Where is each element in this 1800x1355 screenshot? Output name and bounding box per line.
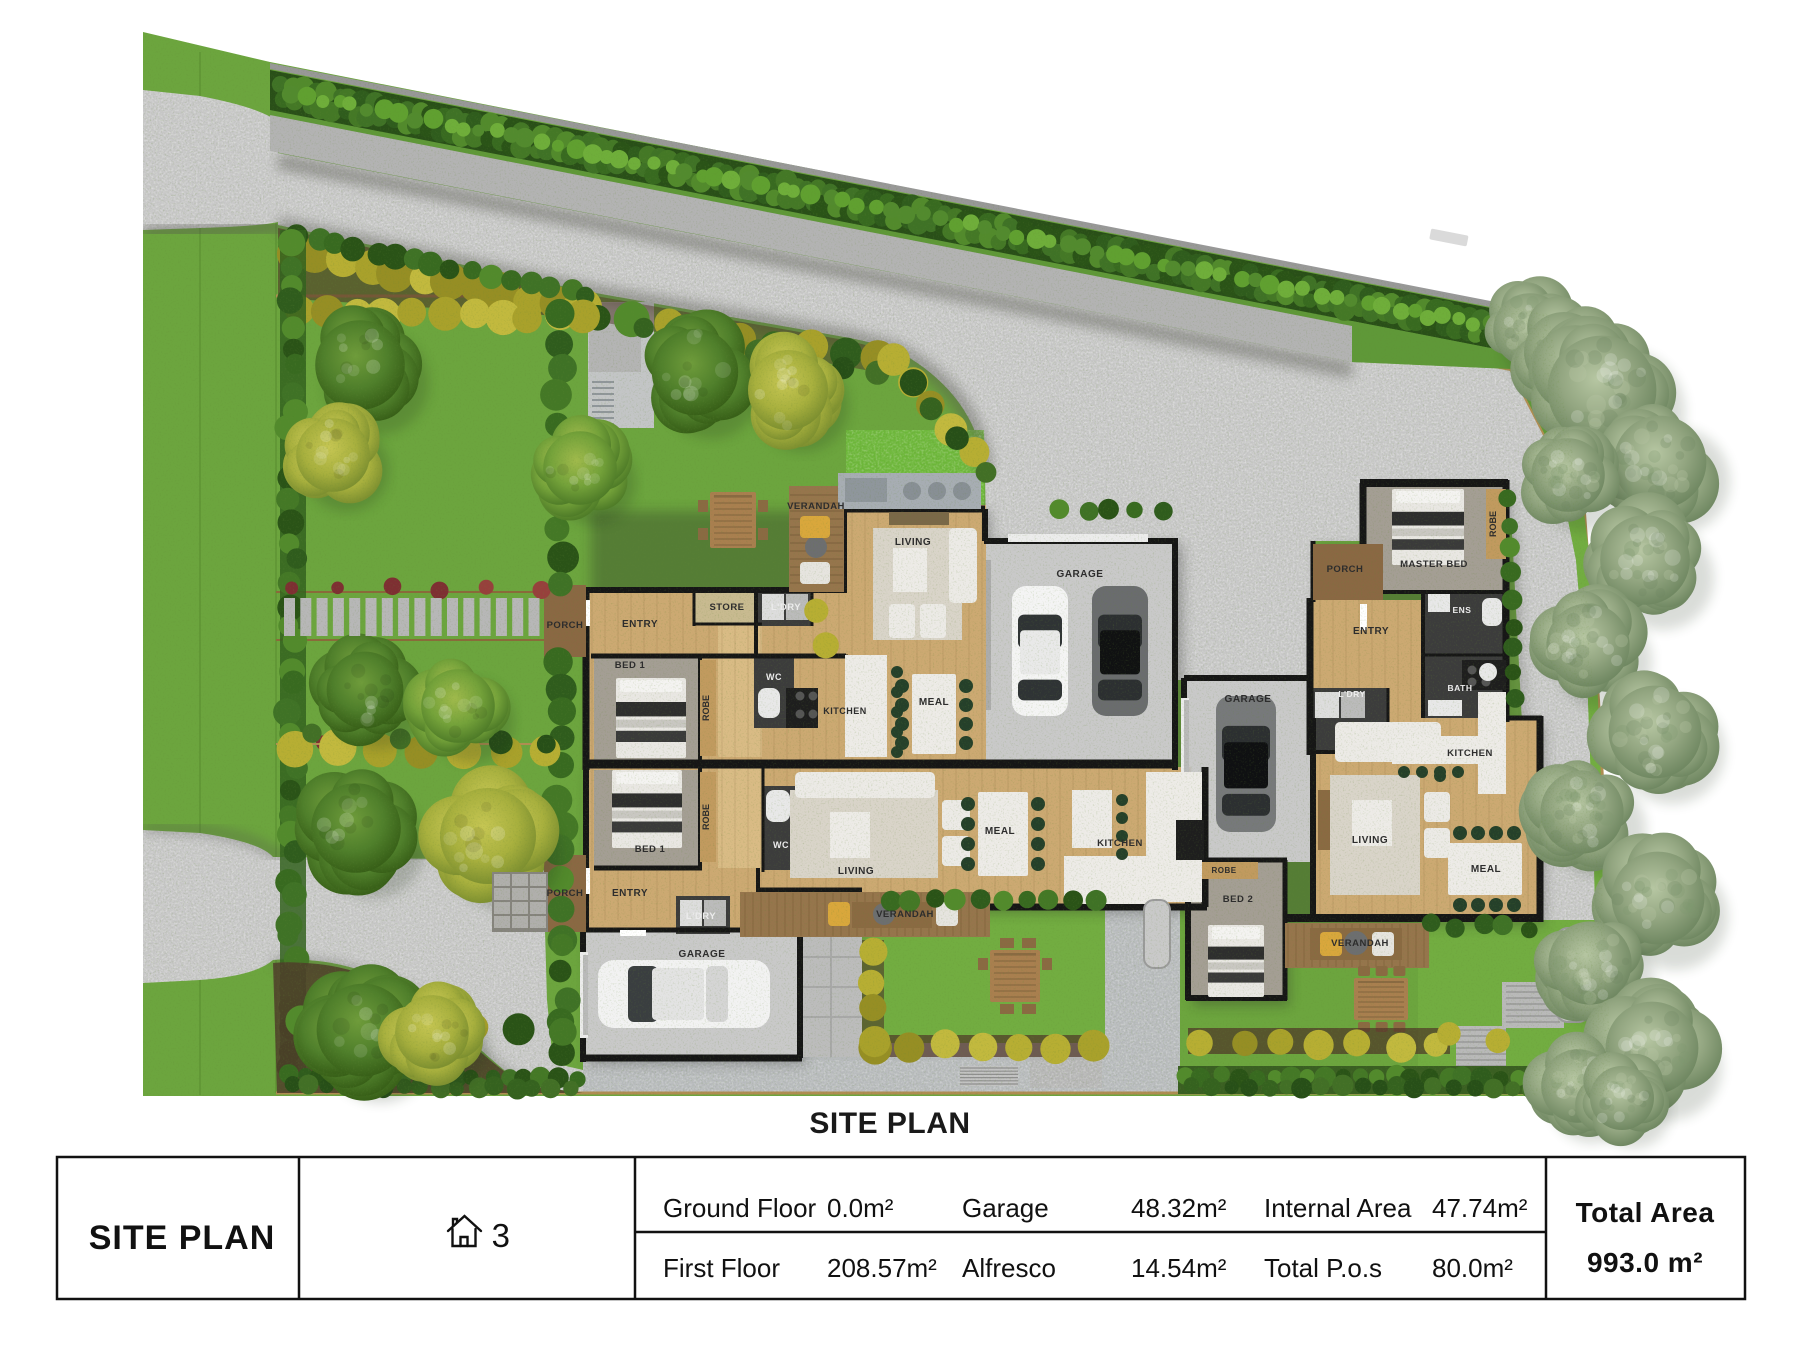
- svg-text:Garage: Garage: [962, 1193, 1049, 1223]
- svg-text:208.57m²: 208.57m²: [827, 1253, 937, 1283]
- svg-text:GARAGE: GARAGE: [1057, 569, 1104, 580]
- svg-text:47.74m²: 47.74m²: [1432, 1193, 1528, 1223]
- svg-text:ENTRY: ENTRY: [1353, 626, 1389, 637]
- svg-text:MASTER BED: MASTER BED: [1400, 559, 1468, 570]
- svg-text:First Floor: First Floor: [663, 1253, 780, 1283]
- svg-text:GARAGE: GARAGE: [1225, 694, 1272, 705]
- svg-text:80.0m²: 80.0m²: [1432, 1253, 1513, 1283]
- svg-text:WC: WC: [773, 840, 789, 850]
- svg-text:48.32m²: 48.32m²: [1131, 1193, 1227, 1223]
- svg-text:KITCHEN: KITCHEN: [1447, 748, 1493, 759]
- svg-text:Total P.o.s: Total P.o.s: [1264, 1253, 1382, 1283]
- svg-text:0.0m²: 0.0m²: [827, 1193, 894, 1223]
- svg-text:BED 1: BED 1: [615, 660, 646, 671]
- svg-text:KITCHEN: KITCHEN: [1097, 838, 1143, 849]
- svg-text:ENTRY: ENTRY: [622, 619, 658, 630]
- svg-text:Internal Area: Internal Area: [1264, 1193, 1412, 1223]
- svg-text:ROBE: ROBE: [1211, 866, 1236, 875]
- svg-text:Total Area: Total Area: [1576, 1197, 1715, 1228]
- svg-text:PORCH: PORCH: [547, 620, 584, 631]
- svg-text:MEAL: MEAL: [985, 826, 1015, 837]
- svg-text:MEAL: MEAL: [919, 697, 949, 708]
- svg-text:VERANDAH: VERANDAH: [787, 501, 845, 512]
- svg-text:14.54m²: 14.54m²: [1131, 1253, 1227, 1283]
- svg-text:BED 2: BED 2: [1223, 894, 1253, 905]
- svg-text:ENTRY: ENTRY: [612, 888, 648, 899]
- svg-text:ROBE: ROBE: [701, 804, 711, 830]
- svg-text:L'DRY: L'DRY: [686, 911, 716, 922]
- svg-text:LIVING: LIVING: [895, 537, 931, 548]
- svg-text:PORCH: PORCH: [1327, 564, 1364, 575]
- svg-text:PORCH: PORCH: [547, 888, 584, 899]
- svg-text:SITE PLAN: SITE PLAN: [89, 1219, 276, 1257]
- svg-text:ROBE: ROBE: [1488, 511, 1498, 537]
- svg-text:VERANDAH: VERANDAH: [876, 909, 934, 920]
- svg-text:GARAGE: GARAGE: [679, 949, 726, 960]
- svg-text:LIVING: LIVING: [838, 866, 874, 877]
- svg-text:ENS: ENS: [1453, 605, 1472, 615]
- svg-text:VERANDAH: VERANDAH: [1331, 938, 1389, 949]
- svg-text:STORE: STORE: [709, 602, 744, 613]
- svg-text:LIVING: LIVING: [1352, 835, 1388, 846]
- svg-text:WC: WC: [766, 672, 782, 682]
- svg-text:SITE PLAN: SITE PLAN: [809, 1107, 970, 1140]
- svg-text:KITCHEN: KITCHEN: [823, 706, 867, 716]
- svg-text:BED 1: BED 1: [635, 844, 666, 855]
- svg-text:Alfresco: Alfresco: [962, 1253, 1056, 1283]
- svg-text:L'DRY: L'DRY: [771, 602, 801, 613]
- svg-text:993.0 m²: 993.0 m²: [1587, 1247, 1703, 1278]
- svg-text:BATH: BATH: [1448, 683, 1473, 693]
- svg-text:ROBE: ROBE: [701, 695, 711, 721]
- svg-text:Ground Floor: Ground Floor: [663, 1193, 817, 1223]
- svg-text:MEAL: MEAL: [1471, 864, 1501, 875]
- svg-text:L'DRY: L'DRY: [1338, 689, 1365, 699]
- svg-text:3: 3: [492, 1217, 511, 1254]
